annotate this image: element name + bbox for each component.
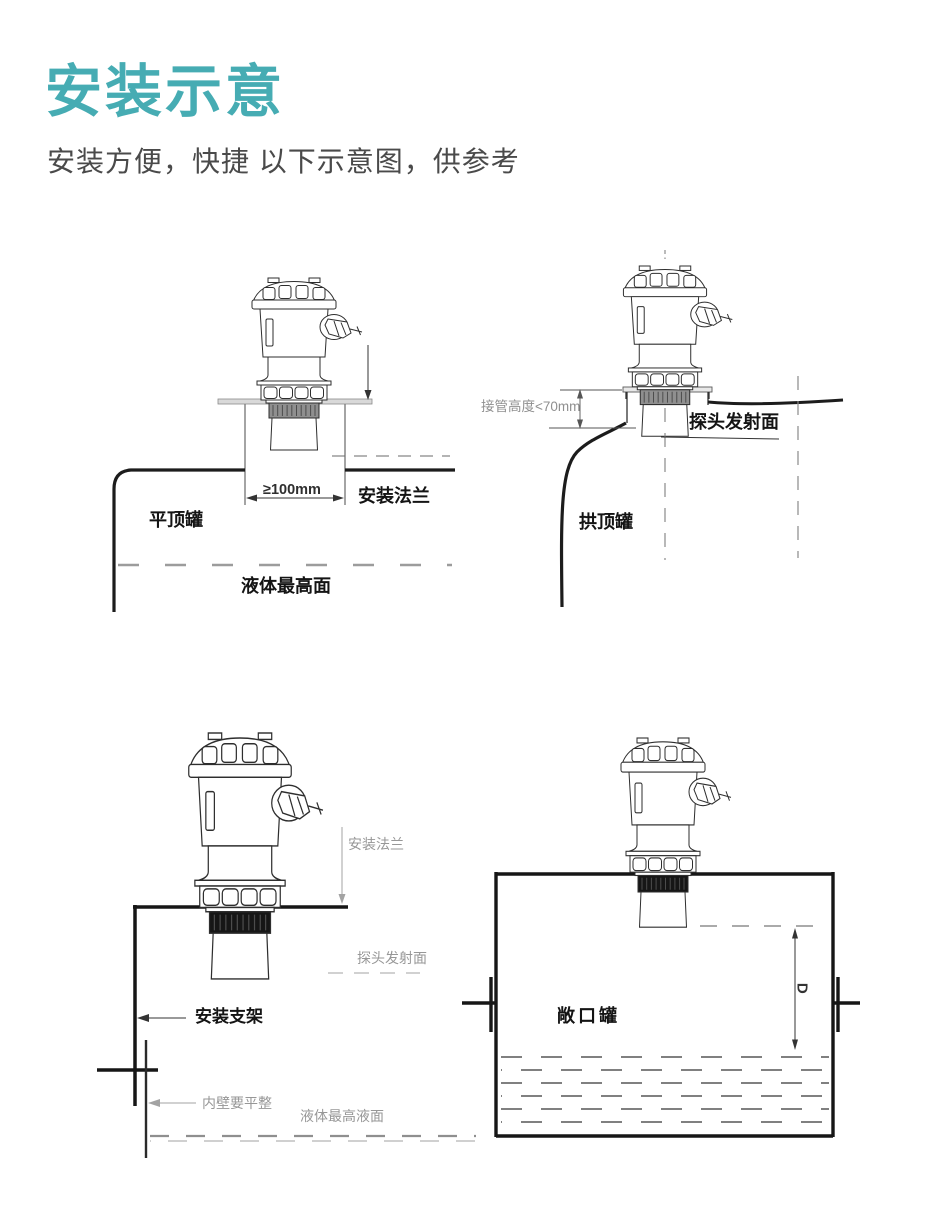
flange-label-flat-top: 安装法兰 bbox=[358, 487, 430, 507]
down-arrowhead-icon bbox=[339, 894, 346, 904]
inner-wall-note-label: 内壁要平整 bbox=[202, 1096, 272, 1111]
dome-top-tank-label: 拱顶罐 bbox=[579, 513, 633, 533]
probe-face-leader-line bbox=[661, 437, 779, 439]
bracket-label: 安装支架 bbox=[195, 1008, 263, 1027]
left-arrowhead-icon bbox=[137, 1014, 149, 1022]
right-trunnion bbox=[832, 977, 860, 1032]
sensor-drawing-dome-top bbox=[623, 266, 732, 436]
liquid-dashes bbox=[501, 1057, 829, 1122]
max-liquid-level-label-flat-top: 液体最高面 bbox=[241, 577, 331, 597]
min-distance-dimension-label: ≥100mm bbox=[263, 483, 321, 499]
sensor-drawing-bracket bbox=[189, 733, 323, 979]
left-trunnion bbox=[462, 977, 497, 1032]
product-installation-page: 安装示意 安装方便，快捷 以下示意图，供参考 bbox=[0, 0, 930, 1214]
blind-zone-d-label: D bbox=[793, 983, 810, 994]
nozzle-height-dimension-label: 接管高度<70mm bbox=[481, 400, 580, 415]
sensor-drawing-open-tank bbox=[621, 738, 731, 927]
max-liquid-level-label-bracket: 液体最高液面 bbox=[300, 1109, 384, 1124]
installation-diagrams-canvas bbox=[0, 0, 930, 1214]
probe-face-label-dome: 探头发射面 bbox=[689, 413, 779, 433]
flat-top-tank-label: 平顶罐 bbox=[149, 511, 203, 531]
flange-label-bracket: 安装法兰 bbox=[348, 837, 404, 852]
probe-face-label-bracket: 探头发射面 bbox=[357, 951, 427, 966]
down-arrowhead-icon bbox=[365, 390, 372, 400]
open-tank-label: 敞口罐 bbox=[557, 1007, 620, 1027]
dome-roof-right bbox=[708, 400, 843, 404]
left-arrowhead-icon bbox=[148, 1099, 160, 1107]
